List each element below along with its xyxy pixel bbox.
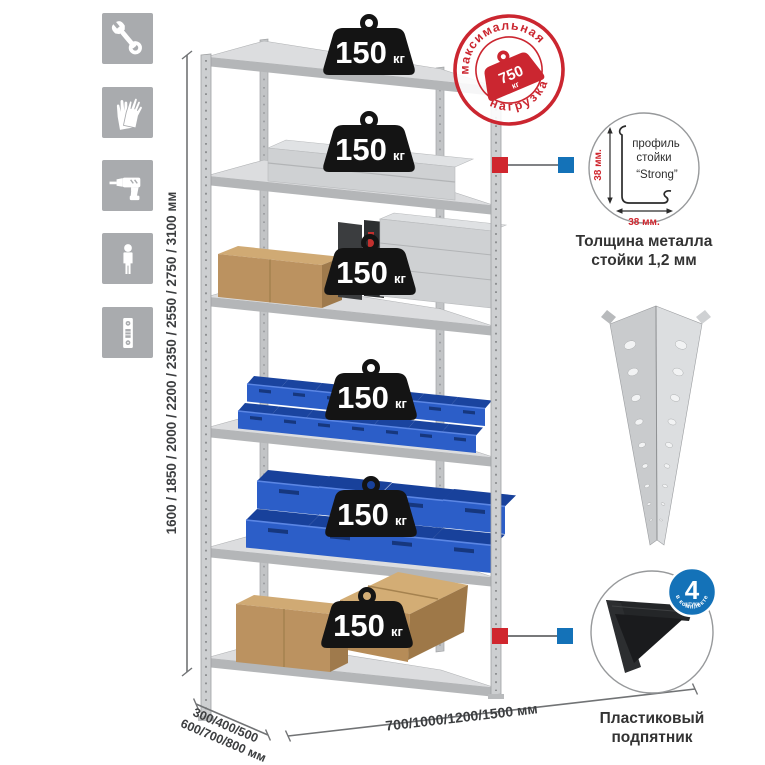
badge-value: 150 bbox=[335, 35, 387, 70]
profile-detail: 38 мм. 38 мм. профиль стойки “Strong” То… bbox=[576, 113, 713, 269]
quantity-number: 4 bbox=[685, 575, 700, 605]
profile-caption-1: Толщина металла bbox=[576, 233, 713, 250]
storage-bin bbox=[442, 424, 483, 453]
profile-label-1: профиль bbox=[632, 138, 680, 150]
badge-unit: кг bbox=[395, 513, 408, 528]
upright-post-image bbox=[601, 306, 711, 545]
blue-marker bbox=[557, 628, 573, 644]
storage-bin bbox=[451, 397, 492, 426]
width-label: 700/1000/1200/1500 мм bbox=[384, 700, 538, 733]
max-load-stamp: максимальная нагрузка 750 кг bbox=[438, 0, 580, 141]
profile-caption-2: стойки 1,2 мм bbox=[591, 252, 696, 269]
cardboard-box bbox=[218, 246, 342, 308]
red-marker bbox=[492, 628, 508, 644]
profile-label-3: “Strong” bbox=[636, 169, 678, 181]
badge-value: 150 bbox=[336, 255, 388, 290]
profile-dim-side: 38 мм. bbox=[593, 149, 604, 181]
foot-detail: 4 штуки в комплекте Пластиковый подпятни… bbox=[591, 568, 716, 746]
profile-callout-connector bbox=[492, 157, 574, 173]
load-badge-1: 150 кг bbox=[323, 17, 415, 76]
depth-dimension: 300/400/500 600/700/800 мм bbox=[179, 699, 275, 765]
scene: 150 кг 150 кг 150 кг 150 кг bbox=[0, 0, 765, 765]
badge-unit: кг bbox=[391, 624, 404, 639]
infographic-shelving-unit: 150 кг 150 кг 150 кг 150 кг bbox=[0, 0, 765, 765]
load-badge-2: 150 кг bbox=[323, 114, 415, 173]
badge-unit: кг bbox=[393, 51, 406, 66]
badge-value: 150 bbox=[337, 380, 389, 415]
badge-unit: кг bbox=[395, 396, 408, 411]
foot-callout-connector bbox=[492, 628, 573, 644]
foot-caption-2: подпятник bbox=[611, 729, 692, 746]
height-dimension: 1600 / 1850 / 2000 / 2200 / 2350 / 2550 … bbox=[164, 51, 192, 676]
red-marker bbox=[492, 157, 508, 173]
badge-value: 150 bbox=[333, 608, 385, 643]
badge-value: 150 bbox=[337, 497, 389, 532]
height-label: 1600 / 1850 / 2000 / 2200 / 2350 / 2550 … bbox=[164, 192, 179, 535]
badge-unit: кг bbox=[393, 148, 406, 163]
foot-caption-1: Пластиковый bbox=[600, 710, 705, 727]
badge-value: 150 bbox=[335, 132, 387, 167]
storage-bin bbox=[443, 489, 516, 534]
profile-dim-bottom: 38 мм. bbox=[628, 217, 660, 228]
load-badge-4: 150 кг bbox=[325, 362, 417, 421]
blue-marker bbox=[558, 157, 574, 173]
profile-label-2: стойки bbox=[636, 152, 671, 164]
quantity-badge: 4 штуки в комплекте bbox=[668, 568, 716, 616]
badge-unit: кг bbox=[394, 271, 407, 286]
